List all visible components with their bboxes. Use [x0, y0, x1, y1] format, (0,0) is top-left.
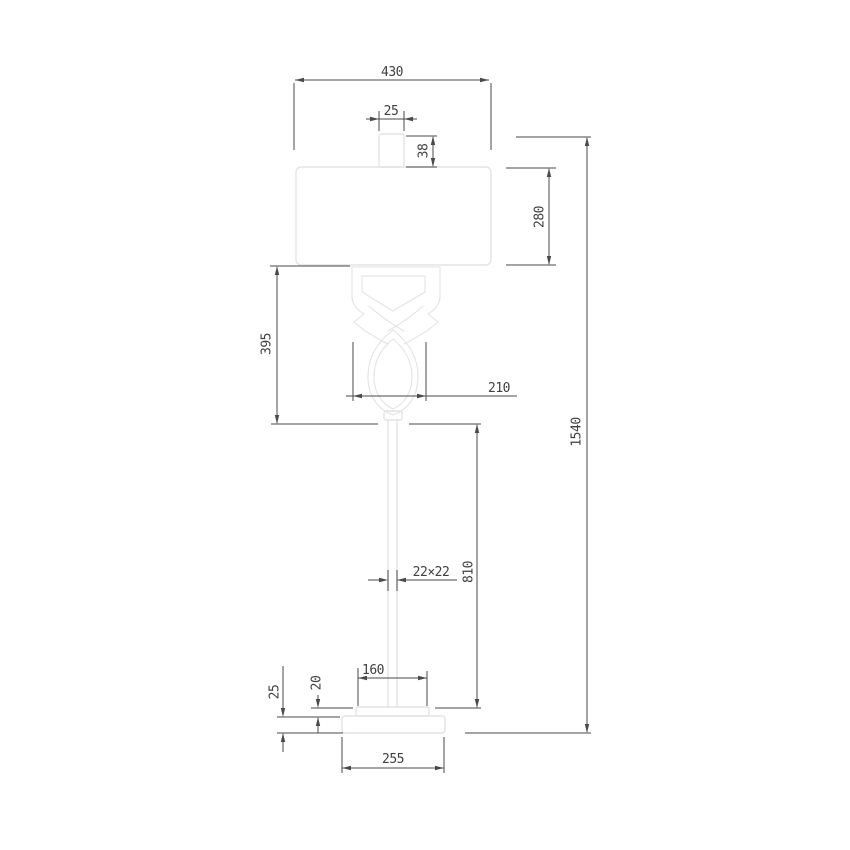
lamp-base-plate: [356, 707, 429, 716]
lamp-technical-drawing: 430 25 38 280: [0, 0, 850, 850]
dim-label-finial-width: 25: [384, 104, 399, 119]
dim-label-finial-height: 38: [417, 144, 432, 159]
dimensions-group: 430 25 38 280: [260, 65, 592, 773]
dim-label-decoration-height: 395: [260, 333, 275, 355]
dim-label-shade-width: 430: [381, 65, 403, 80]
lamp-ribbon-cross-right: [388, 306, 423, 331]
dim-finial-width: 25: [366, 104, 417, 131]
lamp-finial: [379, 134, 404, 167]
lamp-base: [342, 716, 445, 733]
dim-label-pole-cross-section: 22×22: [413, 565, 450, 580]
dim-label-base-ring-height: 25: [268, 685, 283, 700]
lamp-ribbon-cross-left: [369, 306, 404, 331]
dim-label-pole-height: 810: [462, 561, 477, 583]
lamp-shade: [296, 167, 491, 265]
dim-shade-height: 280: [506, 168, 556, 265]
dim-label-decoration-width: 210: [488, 381, 510, 396]
dim-label-total-height: 1540: [570, 417, 585, 446]
dim-pole-cross-section: 22×22: [368, 565, 457, 591]
lamp-outline-group: [296, 134, 491, 733]
lamp-yoke-inner-shield: [362, 276, 425, 311]
lamp-teardrop-inner: [374, 339, 412, 409]
dim-decoration-width: 210: [346, 342, 517, 401]
dim-label-shade-height: 280: [533, 206, 548, 228]
dim-decoration-height: 395: [260, 266, 379, 424]
dim-base-plate-height: 20: [310, 676, 354, 733]
dim-base-ring-height: 25: [268, 666, 344, 752]
lamp-yoke-left: [352, 267, 388, 344]
dim-total-height: 1540: [465, 137, 591, 733]
dim-label-base-plate-width: 160: [362, 663, 384, 678]
dim-base-plate-width: 160: [358, 663, 427, 706]
dim-label-base-width: 255: [382, 752, 404, 767]
dim-label-base-plate-height: 20: [310, 676, 325, 691]
dim-base-width: 255: [342, 737, 444, 773]
lamp-teardrop-outer: [368, 330, 418, 415]
dim-finial-height: 38: [406, 136, 437, 167]
